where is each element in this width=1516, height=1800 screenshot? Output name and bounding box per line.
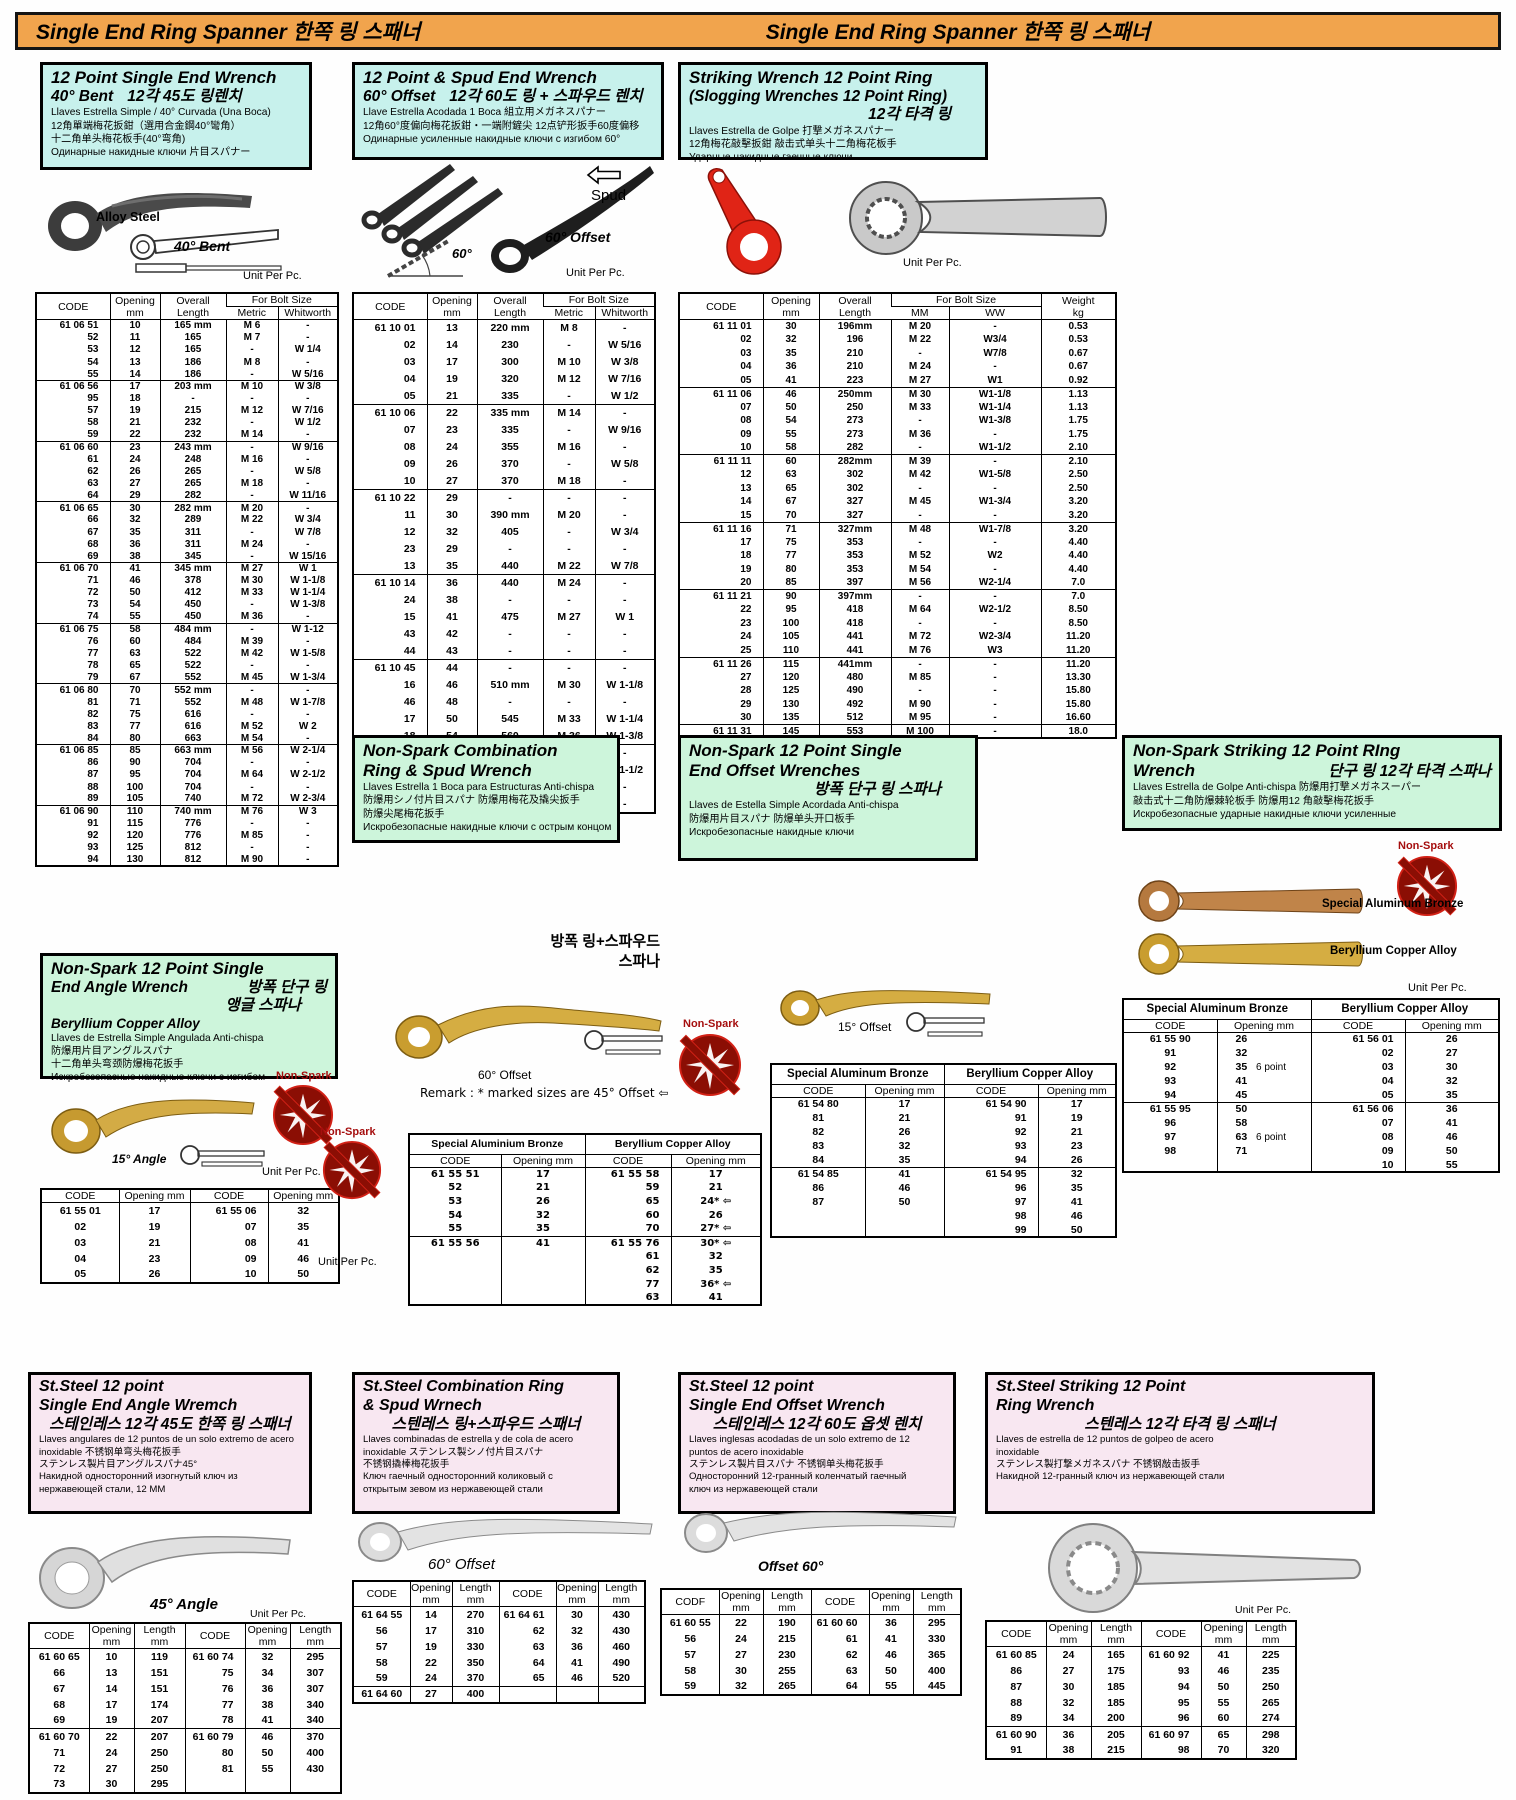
table-cell: -	[543, 626, 595, 643]
table-cell: 95	[36, 392, 110, 404]
table-cell: 14	[89, 1681, 134, 1697]
col-header-code: CODE	[499, 1581, 556, 1607]
table-cell: 12	[679, 468, 763, 482]
table-row: 5413186M 8-	[36, 356, 338, 368]
table-cell: M 18	[226, 477, 278, 489]
table-cell: 61 11 21	[679, 590, 763, 604]
table-cell: 61 06 75	[36, 623, 110, 635]
table-row: 91320227	[1123, 1046, 1499, 1060]
table-row: 84359426	[771, 1153, 1116, 1167]
col-header-metric: Metric	[226, 307, 278, 320]
table-row: 57272306246365	[661, 1647, 961, 1663]
table-row: 4648---	[353, 694, 655, 711]
table-cell: 812	[160, 854, 226, 866]
table-cell: 250	[134, 1761, 185, 1777]
table-cell: 440	[477, 575, 543, 592]
table-cell: 71	[763, 522, 819, 536]
table-cell: 61 60 85	[986, 1647, 1046, 1663]
table-row: 2438---	[353, 592, 655, 609]
table-cell: 445	[913, 1679, 961, 1695]
table-cell: -	[543, 660, 595, 677]
table-row: 94450535	[1123, 1088, 1499, 1102]
table-cell: 210	[819, 360, 891, 374]
table-cell: -	[226, 660, 278, 672]
table-cell: 38	[245, 1697, 290, 1713]
angle-label: 15° Angle	[112, 1152, 166, 1166]
table-cell: -	[891, 617, 949, 631]
table-cell: 26	[110, 465, 160, 477]
table-cell: 35	[1038, 1181, 1116, 1195]
table-cell: W 7/8	[595, 558, 655, 575]
table-cell: 50	[245, 1745, 290, 1761]
table-row: 56242156141330	[661, 1631, 961, 1647]
section-title-korean: 방폭 단구 링	[247, 979, 327, 997]
table-cell: 310	[452, 1623, 499, 1639]
table-cell: 24	[110, 453, 160, 465]
table-cell: -	[595, 473, 655, 490]
table-cell: 30* ⇦	[671, 1236, 761, 1250]
table-cell: W1	[949, 374, 1041, 388]
table-cell: 62	[36, 465, 110, 477]
table-cell: 46	[353, 694, 427, 711]
table-cell: -	[949, 455, 1041, 469]
table-cell: -	[891, 441, 949, 455]
table-cell: 67	[763, 495, 819, 509]
table-row: 9518---	[36, 392, 338, 404]
table-cell: 61 64 61	[499, 1607, 556, 1623]
table-cell: 72	[29, 1761, 89, 1777]
table-cell: -	[891, 536, 949, 550]
table-cell: 63	[499, 1639, 556, 1655]
table-cell: 230	[763, 1647, 811, 1663]
table-cell: 12	[353, 524, 427, 541]
table-cell	[1123, 1158, 1217, 1172]
table-cell: 94	[1141, 1679, 1201, 1695]
table-row: 6124248M 16-	[36, 453, 338, 465]
table-cell: 15	[353, 609, 427, 626]
table-cell: 165	[160, 344, 226, 356]
group-header-aluminum-bronze: Special Aluminum Bronze	[1123, 999, 1311, 1019]
table-row: 5312165-W 1/4	[36, 344, 338, 356]
table-cell: 21	[671, 1181, 761, 1195]
table-cell: 250	[134, 1745, 185, 1761]
table-cell: 26	[865, 1125, 944, 1139]
unit-per-pc-label: Unit Per Pc.	[243, 270, 302, 282]
section-title-2: Ring & Spud Wrench	[363, 761, 609, 781]
table-cell: 3.20	[1041, 495, 1116, 509]
table-cell: 14	[110, 368, 160, 380]
table-cell: -	[278, 429, 338, 441]
desc-line: Накидной односторонний изогнутый ключ из	[39, 1471, 301, 1483]
table-cell: 55	[1405, 1158, 1499, 1172]
table-cell: 88	[986, 1695, 1046, 1711]
table-cell: 83	[771, 1139, 865, 1153]
table-cell: 490	[819, 684, 891, 698]
non-spark-label: Non-Spark	[683, 1018, 739, 1030]
table-cell: 60	[110, 635, 160, 647]
table-cell: 29	[679, 698, 763, 712]
section-title: Non-Spark Striking 12 Point RIng	[1133, 741, 1491, 761]
table-cell: 17	[865, 1097, 944, 1111]
desc-line: 防爆用シノ付片目スパナ 防爆用梅花及撬尖扳手	[363, 794, 609, 807]
table-cell: M 39	[226, 635, 278, 647]
table-row: 61 10 0113220 mmM 8-	[353, 320, 655, 337]
col-header-opening: Opening mm	[1046, 1621, 1091, 1647]
section-title: Non-Spark 12 Point Single	[51, 959, 327, 979]
table-cell: 61 06 80	[36, 684, 110, 696]
table-row: 1646510 mmM 30W 1-1/8	[353, 677, 655, 694]
table-cell: 225	[1246, 1647, 1296, 1663]
table-cell: 67	[110, 672, 160, 684]
table-cell: 94	[1123, 1088, 1217, 1102]
desc-line: 防爆用片目アングルスパナ	[51, 1045, 327, 1058]
col-header-whitworth: Whitworth	[278, 307, 338, 320]
table-row: 7330295	[29, 1777, 341, 1793]
table-cell: 68	[29, 1697, 89, 1713]
table-row: 7250412M 33W 1-1/4	[36, 587, 338, 599]
table-cell: 4.40	[1041, 549, 1116, 563]
table-cell: 55	[110, 611, 160, 623]
col-header-whitworth: Whitworth	[595, 307, 655, 320]
table-cell: 59	[36, 429, 110, 441]
table-row: 6429282-W 11/16	[36, 490, 338, 502]
table-cell: 63	[811, 1663, 869, 1679]
table-row: 94130812M 90-	[36, 854, 338, 866]
col-header-length: Length mm	[290, 1623, 341, 1649]
table-cell: 13	[110, 356, 160, 368]
spud-arrow-icon	[586, 165, 622, 185]
table-cell: 20	[679, 576, 763, 590]
table-cell: M 20	[543, 507, 595, 524]
table-cell: -	[278, 781, 338, 793]
table-row: 6341	[409, 1291, 761, 1305]
table-cell: W 1-12	[278, 623, 338, 635]
table-cell: 46	[1405, 1130, 1499, 1144]
table-row: 1467327M 45W1-3/43.20	[679, 495, 1116, 509]
col-header-code: CODE	[585, 1154, 671, 1167]
col-header-opening: Opening mm	[1038, 1084, 1116, 1097]
table-cell: W1-1/4	[949, 401, 1041, 415]
table-cell: 02	[353, 337, 427, 354]
table-cell: 2.10	[1041, 455, 1116, 469]
table-cell: 36	[110, 538, 160, 550]
table-cell: 09	[1311, 1144, 1405, 1158]
table-cell: 175	[1091, 1663, 1141, 1679]
table-cell: 71	[110, 696, 160, 708]
table-cell: W 9/16	[595, 422, 655, 439]
table-row: 8480663M 54-	[36, 732, 338, 744]
table-cell: M 33	[226, 587, 278, 599]
desc-line: 12角60°度偏向梅花扳鉗・一端附鏟尖 12点铲形扳手60度偏移	[363, 120, 653, 133]
table-row: 1570327--3.20	[679, 509, 1116, 523]
col-header-bolt-size: For Bolt Size	[543, 293, 655, 307]
table-cell: 0.53	[1041, 333, 1116, 347]
table-cell: 307	[290, 1665, 341, 1681]
table-cell: 46	[865, 1181, 944, 1195]
desc-line: Llaves angulares de 12 puntos de un solo…	[39, 1434, 301, 1446]
table-cell	[1217, 1158, 1311, 1172]
table-cell: 61 60 97	[1141, 1727, 1201, 1743]
table-cell: 58	[661, 1663, 719, 1679]
table-cell: 370	[290, 1729, 341, 1745]
table-cell: -	[226, 684, 278, 696]
table-cell: M 64	[226, 769, 278, 781]
table-row: 1877353M 52W24.40	[679, 549, 1116, 563]
table-row: 03210841	[41, 1235, 339, 1251]
table-row: 7660484M 39-	[36, 635, 338, 647]
table-cell: 22	[719, 1615, 763, 1631]
section-header-nonspark-offset: Non-Spark 12 Point Single End Offset Wre…	[678, 735, 978, 861]
table-cell: 77	[110, 720, 160, 732]
table-cell: 32	[865, 1139, 944, 1153]
table-cell: 50	[1038, 1223, 1116, 1237]
table-cell: W1-7/8	[949, 522, 1041, 536]
table-cell: 86	[771, 1181, 865, 1195]
section-title-korean: 스텐레스 12각 타격 링 스패너	[996, 1416, 1364, 1434]
table-cell: -	[278, 502, 338, 514]
table-cell: 32	[427, 524, 477, 541]
table-cell: 71	[29, 1745, 89, 1761]
table-cell: 38	[427, 592, 477, 609]
table-cell: 61 60 60	[811, 1615, 869, 1631]
table-cell: M 12	[543, 371, 595, 388]
table-cell: 81	[36, 696, 110, 708]
table-cell: 05	[679, 374, 763, 388]
col-header-opening: Opening mm	[119, 1189, 190, 1203]
table-cell: 70	[110, 684, 160, 696]
beryllium-copper-label: Beryllium Copper Alloy	[1330, 945, 1457, 957]
table-row: 2295418M 64W2-1/28.50	[679, 603, 1116, 617]
table-cell: 55	[36, 368, 110, 380]
table-cell: 704	[160, 781, 226, 793]
table-cell: 2.50	[1041, 468, 1116, 482]
table-cell: -	[226, 599, 278, 611]
table-cell: 26	[427, 456, 477, 473]
table-cell: 151	[134, 1681, 185, 1697]
table-row: 6632289M 22W 3/4	[36, 514, 338, 526]
table-cell: W 5/16	[278, 368, 338, 380]
offset-label: Offset 60°	[758, 1558, 823, 1574]
table-cell: 65	[763, 482, 819, 496]
table-cell	[771, 1223, 865, 1237]
section-subtitle-korean: 12각 45도 링렌치	[127, 88, 241, 106]
table-cell: 80	[185, 1745, 245, 1761]
table-row: 58302556350400	[661, 1663, 961, 1679]
table-cell: 30	[719, 1663, 763, 1679]
table-cell: 73	[36, 599, 110, 611]
table-cell: 61 64 55	[353, 1607, 410, 1623]
table-cell: 243 mm	[160, 441, 226, 453]
table-cell: 50	[268, 1267, 339, 1283]
table-cell: M 42	[891, 468, 949, 482]
table-cell: -	[949, 482, 1041, 496]
table-cell: 61 10 06	[353, 405, 427, 422]
table-cell: 41	[671, 1291, 761, 1305]
table-cell: 30	[763, 320, 819, 334]
table-cell: -	[595, 490, 655, 507]
table-cell: 98	[1141, 1743, 1201, 1759]
table-cell: 475	[477, 609, 543, 626]
table-cell: M 85	[891, 671, 949, 685]
table-cell: 135	[763, 711, 819, 725]
table-cell: 77	[763, 549, 819, 563]
col-header-opening: Opening mm	[719, 1589, 763, 1615]
table-cell: 10	[190, 1267, 268, 1283]
table-cell: W 1-1/4	[595, 711, 655, 728]
non-spark-label: Non-Spark	[1398, 840, 1454, 852]
table-cell: 52	[36, 332, 110, 344]
table-cell	[290, 1777, 341, 1793]
table-cell: 174	[134, 1697, 185, 1713]
section-header-ststeel-striking: St.Steel Striking 12 Point Ring Wrench 스…	[985, 1372, 1375, 1514]
table-cell: 94	[944, 1153, 1038, 1167]
table-cell: 59	[585, 1181, 671, 1195]
table-cell: 265	[160, 465, 226, 477]
table-cell: 441mm	[819, 657, 891, 671]
table-cell	[245, 1777, 290, 1793]
table-cell: 08	[353, 439, 427, 456]
table-cell: W2-3/4	[949, 630, 1041, 644]
table-row: 8795704M 64W 2-1/2	[36, 769, 338, 781]
table-cell: 36	[245, 1681, 290, 1697]
table-cell: 28	[679, 684, 763, 698]
table-cell: -	[278, 708, 338, 720]
table-cell: 130	[110, 854, 160, 866]
col-header-opening: Opening mm	[869, 1589, 913, 1615]
desc-line: Искробезопасные ударные накидные ключи у…	[1133, 808, 1491, 821]
table-cell: 61 06 60	[36, 441, 110, 453]
table-cell: 22	[110, 429, 160, 441]
group-header-aluminium-bronze: Special Aluminium Bronze	[409, 1134, 585, 1154]
table-cell: 210	[819, 347, 891, 361]
table-cell: 08	[1311, 1130, 1405, 1144]
table-cell: 78	[185, 1713, 245, 1729]
table-cell: W 1	[278, 562, 338, 574]
table-cell: 41	[501, 1236, 585, 1250]
table-cell: -	[226, 757, 278, 769]
table-cell: 63	[585, 1291, 671, 1305]
table-cell: -	[278, 757, 338, 769]
desc-line: Llaves Estrella 1 Boca para Estructuras …	[363, 781, 609, 794]
table-cell: W 2-3/4	[278, 793, 338, 805]
table-cell: 21	[119, 1235, 190, 1251]
table-cell: 08	[190, 1235, 268, 1251]
table-cell: 220 mm	[477, 320, 543, 337]
table-cell: 87	[771, 1195, 865, 1209]
table-cell: 75	[763, 536, 819, 550]
table-row: 61 60 852416561 60 9241225	[986, 1647, 1296, 1663]
table-row: 1055	[1123, 1158, 1499, 1172]
table-cell: W 1/2	[595, 388, 655, 405]
table-row: 61 10 4544---	[353, 660, 655, 677]
table-cell: 92	[36, 830, 110, 842]
offset-label: 15° Offset	[838, 1020, 891, 1034]
col-header-opening: Opening mm	[671, 1154, 761, 1167]
table-cell: -	[226, 817, 278, 829]
table-cell: 58	[110, 623, 160, 635]
table-row: 56173106232430	[353, 1623, 645, 1639]
section-header-striking-wrench: Striking Wrench 12 Point Ring (Slogging …	[678, 62, 988, 160]
table-cell: 30	[679, 711, 763, 725]
table-cell: 13	[353, 558, 427, 575]
table-cell: 13.30	[1041, 671, 1116, 685]
table-cell: 10	[1311, 1158, 1405, 1172]
table-cell: 55	[763, 428, 819, 442]
table-cell: 418	[819, 603, 891, 617]
table-cell: M 54	[891, 563, 949, 577]
table-cell: 484	[160, 635, 226, 647]
table-cell: 35	[865, 1153, 944, 1167]
table-cell: 18.0	[1041, 725, 1116, 739]
unit-per-pc-label: Unit Per Pc.	[1408, 982, 1467, 994]
table-cell: 64	[811, 1679, 869, 1695]
table-cell: 46	[1201, 1663, 1246, 1679]
table-cell: 50	[1201, 1679, 1246, 1695]
table-cell: 302	[819, 468, 891, 482]
table-cell: -	[543, 524, 595, 541]
table-row: 0824355M 16-	[353, 439, 655, 456]
table-cell: M 72	[226, 793, 278, 805]
table-row: 30135512M 95-16.60	[679, 711, 1116, 725]
table-cell: 07	[190, 1219, 268, 1235]
table-cell: 16	[353, 677, 427, 694]
table-cell: 130	[763, 698, 819, 712]
table-cell: 353	[819, 549, 891, 563]
table-cell: 03	[41, 1235, 119, 1251]
table-cell: 75	[185, 1665, 245, 1681]
table-cell: 365	[913, 1647, 961, 1663]
table-cell: M 76	[891, 644, 949, 658]
table-cell: 50	[1405, 1144, 1499, 1158]
non-spark-label: Non-Spark	[320, 1126, 376, 1138]
table-cell: 65	[110, 660, 160, 672]
unit-per-pc-label: Unit Per Pc.	[566, 267, 625, 279]
table-cell: 46	[110, 575, 160, 587]
table-row: 6235	[409, 1264, 761, 1278]
table-cell: 67	[29, 1681, 89, 1697]
table-cell: 02	[1311, 1046, 1405, 1060]
table-row: 1541475M 27W 1	[353, 609, 655, 626]
table-cell: 53	[409, 1195, 501, 1209]
table-cell: 04	[679, 360, 763, 374]
table-cell: M 72	[891, 630, 949, 644]
section-title-2: End Offset Wrenches	[689, 761, 967, 781]
table-row: 61 11 0646250mmM 30W1-1/81.13	[679, 387, 1116, 401]
table-cell: 295	[134, 1777, 185, 1793]
table-row: 1027370M 18-	[353, 473, 655, 490]
table-row: 61 06 90110740 mmM 76W 3	[36, 805, 338, 817]
table-cell: M 27	[226, 562, 278, 574]
table-row: 61 10 2229---	[353, 490, 655, 507]
table-cell: 80	[110, 732, 160, 744]
table-row: 66131517534307	[29, 1665, 341, 1681]
table-row: 9950	[771, 1223, 1116, 1237]
table-cell: -	[595, 541, 655, 558]
table-cell: -	[278, 660, 338, 672]
table-cell: 93	[1141, 1663, 1201, 1679]
table-row: 69192077841340	[29, 1713, 341, 1729]
table-row: 61 60 552219061 60 6036295	[661, 1615, 961, 1631]
table-cell: 15.80	[1041, 698, 1116, 712]
table-cell: 17	[1038, 1097, 1116, 1111]
section-subtitle-korean: 12각 60도 링 + 스파우드 렌치	[449, 88, 642, 106]
table-cell: 54	[36, 356, 110, 368]
table-cell: -	[477, 592, 543, 609]
table-cell: 30	[89, 1777, 134, 1793]
col-header-code: CODE	[679, 293, 763, 320]
six-point-note: 6 point	[1256, 1132, 1286, 1143]
table-cell: 36	[1046, 1727, 1091, 1743]
